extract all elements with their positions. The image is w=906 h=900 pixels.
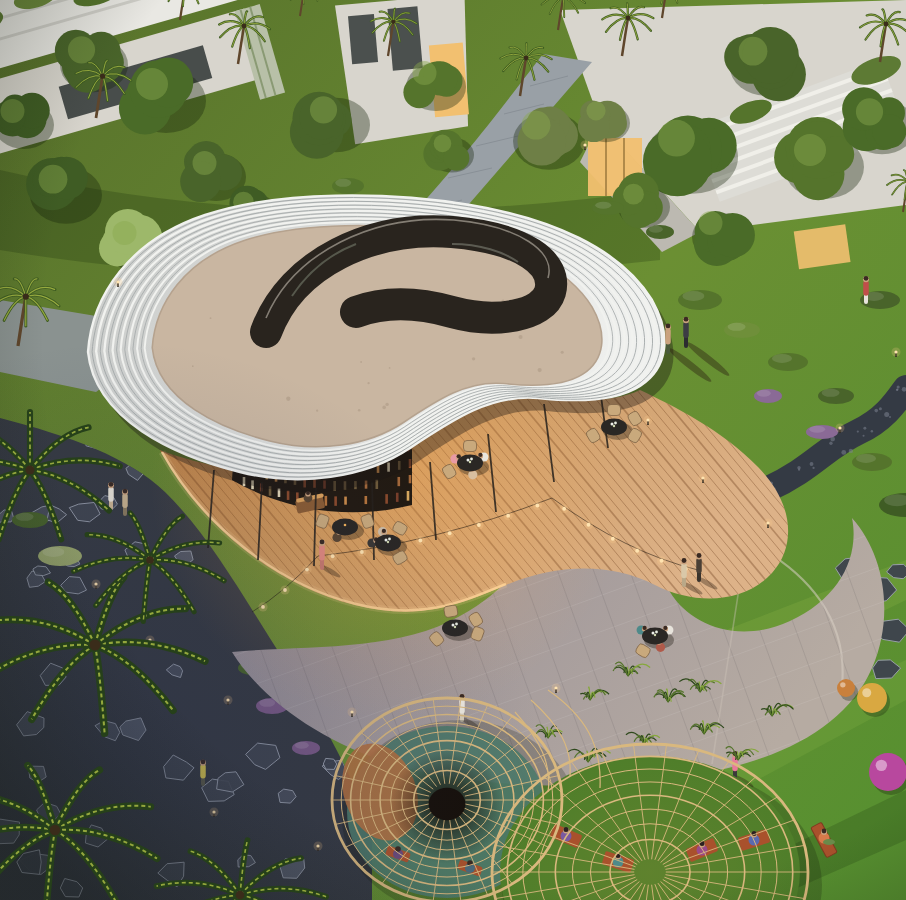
vignette: [0, 0, 906, 900]
scene-canvas: [0, 0, 906, 900]
architectural-render: [0, 0, 906, 900]
